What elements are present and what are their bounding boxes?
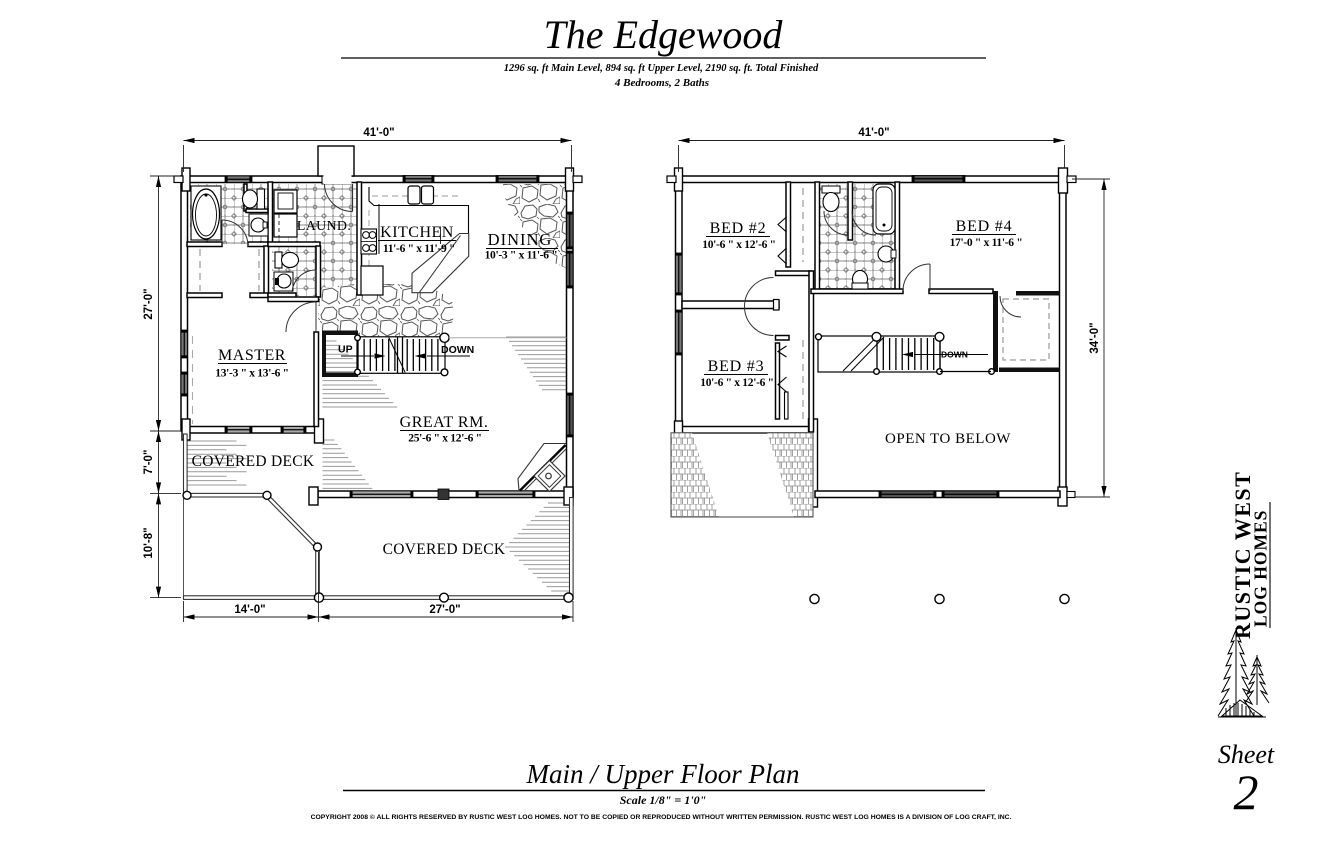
svg-text:10'-6 " x 12'-6 ": 10'-6 " x 12'-6 " [702,239,775,251]
svg-text:COVERED DECK: COVERED DECK [383,541,506,558]
svg-text:BED #3: BED #3 [708,358,765,375]
svg-text:Main / Upper Floor Plan: Main / Upper Floor Plan [526,759,800,789]
svg-text:41'-0": 41'-0" [363,127,394,139]
svg-text:LAUND.: LAUND. [297,219,351,234]
svg-text:LOG HOMES: LOG HOMES [1251,510,1271,627]
svg-text:10'-3 " x 11'-6 ": 10'-3 " x 11'-6 " [485,250,558,262]
svg-text:25'-6 " x 12'-6 ": 25'-6 " x 12'-6 " [408,433,481,445]
svg-text:34'-0": 34'-0" [1089,322,1101,353]
svg-text:10'-8": 10'-8" [143,527,155,558]
svg-text:2: 2 [1234,764,1259,820]
svg-text:BED #4: BED #4 [956,218,1013,235]
svg-text:KITCHEN: KITCHEN [380,224,454,241]
svg-text:DINING: DINING [488,230,553,249]
svg-text:17'-0 " x 11'-6 ": 17'-0 " x 11'-6 " [950,237,1023,249]
svg-text:COVERED DECK: COVERED DECK [192,453,315,470]
svg-text:1296 sq. ft Main Level, 894 sq: 1296 sq. ft Main Level, 894 sq. ft Upper… [504,63,819,74]
svg-text:11'-6 " x 11'-9 ": 11'-6 " x 11'-9 " [383,243,455,255]
svg-text:Scale 1/8" = 1'0": Scale 1/8" = 1'0" [620,793,707,807]
svg-text:UP: UP [338,344,353,356]
svg-text:13'-3 " x 13'-6 ": 13'-3 " x 13'-6 " [215,368,288,380]
svg-text:7'-0": 7'-0" [143,450,155,475]
svg-text:COPYRIGHT 2008 © ALL RIGHTS RE: COPYRIGHT 2008 © ALL RIGHTS RESERVED BY … [311,813,1012,821]
svg-text:BED #2: BED #2 [710,220,767,237]
svg-text:27'-0": 27'-0" [143,288,155,319]
svg-text:The Edgewood: The Edgewood [544,12,784,57]
svg-text:27'-0": 27'-0" [429,604,460,616]
svg-text:41'-0": 41'-0" [858,127,889,139]
svg-text:MASTER: MASTER [218,347,286,364]
svg-text:10'-6 " x 12'-6 ": 10'-6 " x 12'-6 " [700,377,773,389]
svg-text:4 Bedrooms, 2 Baths: 4 Bedrooms, 2 Baths [614,77,709,89]
svg-text:OPEN TO BELOW: OPEN TO BELOW [885,431,1011,447]
svg-text:14'-0": 14'-0" [234,604,265,616]
svg-text:DOWN: DOWN [441,344,474,356]
svg-text:GREAT RM.: GREAT RM. [400,414,489,431]
